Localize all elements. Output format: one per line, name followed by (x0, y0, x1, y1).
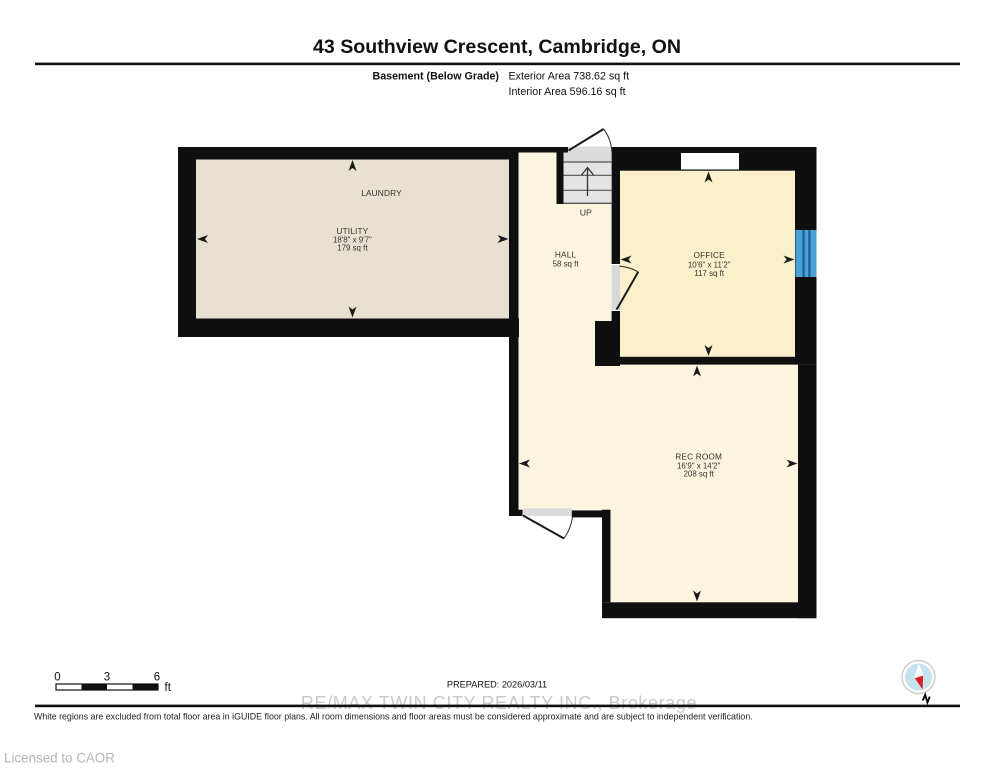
svg-text:REC ROOM: REC ROOM (675, 452, 722, 462)
svg-text:179 sq ft: 179 sq ft (337, 244, 368, 253)
svg-text:Exterior Area 738.62 sq ft: Exterior Area 738.62 sq ft (509, 71, 630, 83)
svg-text:PREPARED: 2026/03/11: PREPARED: 2026/03/11 (447, 680, 547, 690)
svg-text:43 Southview Crescent, Cambrid: 43 Southview Crescent, Cambridge, ON (313, 36, 681, 58)
svg-text:58 sq ft: 58 sq ft (553, 259, 580, 268)
svg-text:3: 3 (104, 672, 110, 684)
svg-text:117 sq ft: 117 sq ft (694, 269, 724, 278)
svg-text:White regions are excluded fro: White regions are excluded from total fl… (34, 711, 753, 721)
svg-text:10'6" x 11'2": 10'6" x 11'2" (688, 260, 731, 269)
svg-text:0: 0 (54, 672, 60, 684)
svg-text:UP: UP (580, 207, 592, 217)
svg-text:ft: ft (165, 682, 172, 694)
svg-text:HALL: HALL (555, 250, 577, 260)
svg-text:Interior Area 596.16 sq ft: Interior Area 596.16 sq ft (509, 86, 626, 98)
svg-text:LAUNDRY: LAUNDRY (361, 188, 402, 198)
svg-text:6: 6 (154, 672, 160, 684)
svg-text:RE/MAX TWIN CITY REALTY INC.,: RE/MAX TWIN CITY REALTY INC., Brokerage (301, 693, 697, 713)
svg-text:OFFICE: OFFICE (694, 250, 726, 260)
svg-text:Basement (Below Grade): Basement (Below Grade) (372, 71, 499, 83)
svg-text:Licensed to CAOR: Licensed to CAOR (4, 751, 115, 766)
svg-text:UTILITY: UTILITY (336, 226, 368, 236)
svg-text:208 sq ft: 208 sq ft (684, 470, 715, 479)
